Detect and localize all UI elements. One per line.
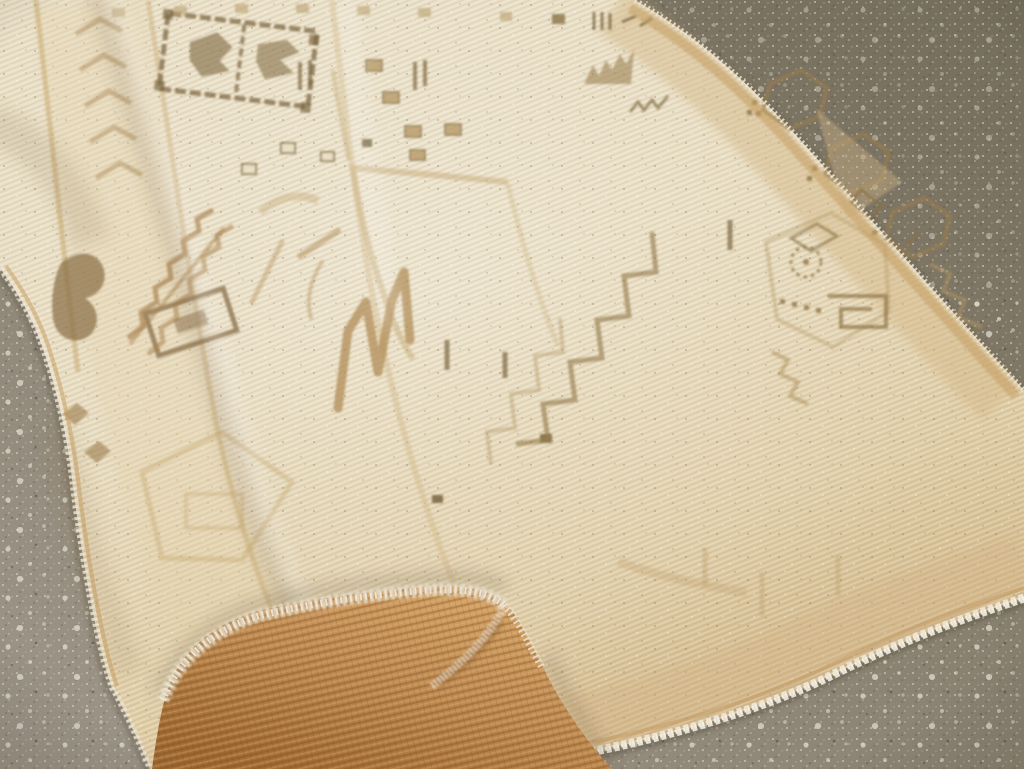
rug-photo [0, 0, 1024, 769]
photo-vignette [0, 0, 1024, 769]
rug-photo-illustration [0, 0, 1024, 769]
